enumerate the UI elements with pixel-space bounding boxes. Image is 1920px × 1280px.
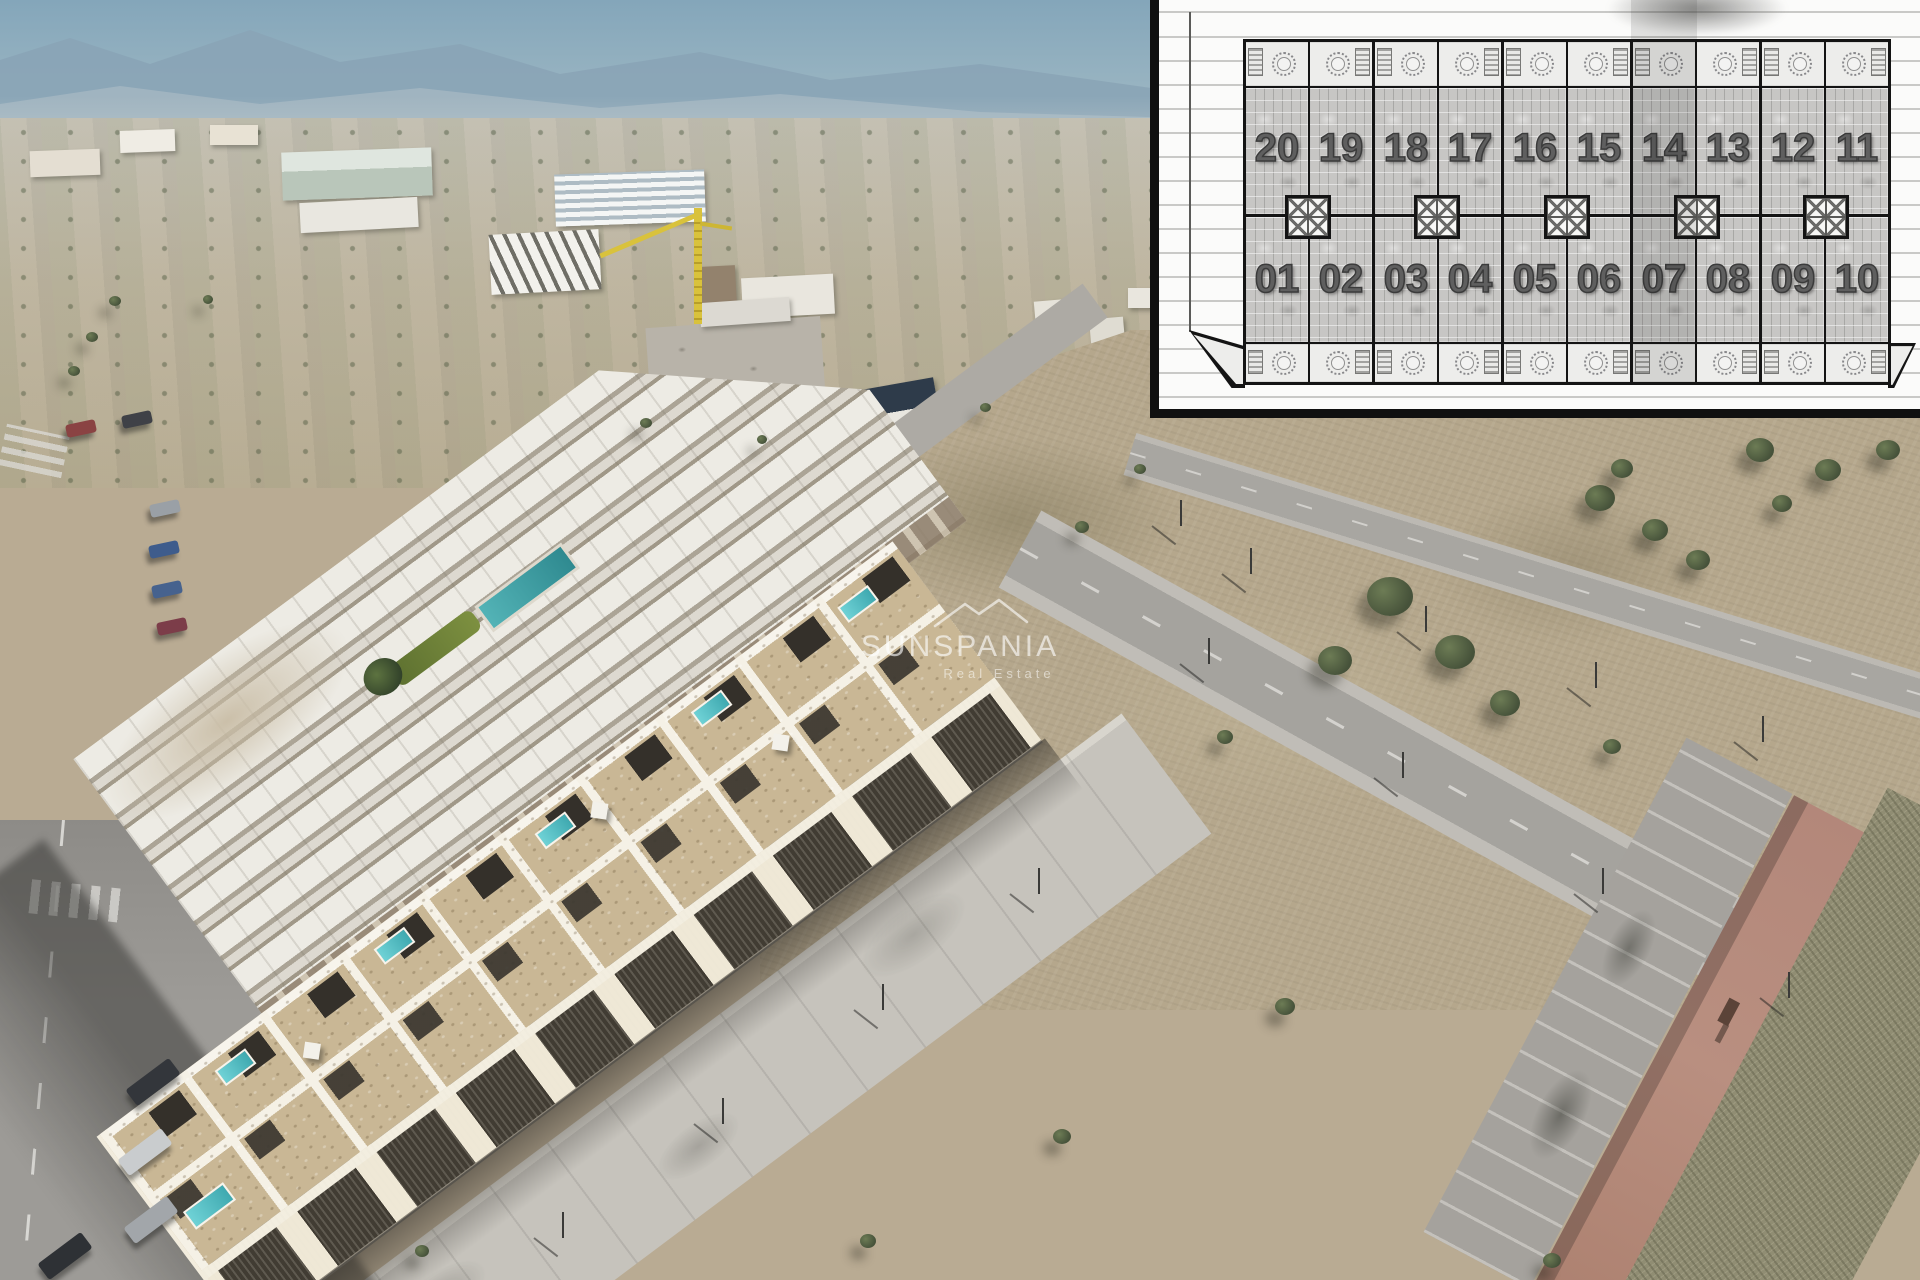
shed (299, 197, 418, 233)
stairs-icon (1506, 48, 1521, 76)
aerial-photo: SUNSPANIA Real Estate 200119021803170416… (0, 0, 1920, 1280)
tree (1746, 438, 1774, 462)
terrace-table-icon (1788, 52, 1812, 76)
plan-unit-20: 20 (1246, 128, 1308, 168)
plan-unit-17: 17 (1439, 128, 1501, 168)
community-pool (474, 542, 580, 632)
tree (1053, 1129, 1071, 1144)
terrace-cell (1310, 42, 1372, 88)
plan-unit-12: 12 (1762, 128, 1824, 168)
site-boundary-line (1189, 12, 1191, 332)
terrace-cell (1375, 342, 1437, 382)
terrace-cell (1504, 342, 1566, 382)
stairs-icon (1742, 350, 1757, 374)
stairs-icon (1355, 350, 1370, 374)
parked-car (148, 540, 180, 559)
stairs-icon (1248, 48, 1263, 76)
stairs-icon (1742, 48, 1757, 76)
tree (1367, 577, 1413, 616)
plan-unit-05: 05 (1504, 259, 1566, 299)
stair-core (1803, 195, 1849, 239)
tree (1603, 739, 1621, 754)
stairs-icon (1484, 350, 1499, 374)
terrace-cell (1697, 342, 1759, 382)
tree (1490, 690, 1520, 716)
terrace-cell (1826, 342, 1888, 382)
tree (980, 403, 991, 412)
watermark-brand: SUNSPANIA (845, 630, 1075, 664)
terrace-table-icon (1272, 351, 1296, 375)
tree (1275, 998, 1295, 1015)
street-lamp (1425, 606, 1427, 632)
building (30, 149, 101, 177)
street-lamp (1038, 868, 1040, 894)
plan-unit-13: 13 (1697, 128, 1759, 168)
tree (1543, 1253, 1561, 1268)
terrace-cell (1439, 42, 1501, 88)
tree (860, 1234, 876, 1248)
terrace-cell (1826, 42, 1888, 88)
tree (1686, 550, 1710, 570)
terrace-cell (1762, 42, 1824, 88)
terrace-table-icon (1530, 351, 1554, 375)
terrace-cell (1568, 42, 1630, 88)
terrace-table-icon (1788, 351, 1812, 375)
tree (415, 1245, 429, 1257)
tree (1318, 646, 1352, 675)
tree (1435, 635, 1475, 669)
tree (1611, 459, 1633, 478)
watermark-tagline: Real Estate (923, 666, 1075, 681)
tree (109, 296, 121, 306)
tree (1876, 440, 1900, 460)
stairs-icon (1764, 48, 1779, 76)
site-plan-overlay: 2001190218031704160515061407130812091110 (1150, 0, 1920, 418)
street-lamp (1250, 548, 1252, 574)
plan-unit-19: 19 (1310, 128, 1372, 168)
plan-unit-16: 16 (1504, 128, 1566, 168)
tree (1585, 485, 1615, 511)
terrace-table-icon (1713, 52, 1737, 76)
street-lamp (1602, 868, 1604, 894)
terrace-cell (1504, 42, 1566, 88)
stairs-icon (1871, 48, 1886, 76)
tree (757, 435, 767, 444)
terrace-table-icon (1401, 52, 1425, 76)
parked-car (151, 580, 183, 599)
stairs-icon (1248, 350, 1263, 374)
stairs-icon (1355, 48, 1370, 76)
shade-smudge (1607, 0, 1787, 36)
tree (1772, 495, 1792, 512)
plan-unit-10: 10 (1826, 259, 1888, 299)
terrace-table-icon (1326, 52, 1350, 76)
terrace-table-icon (1326, 351, 1350, 375)
stair-core (1285, 195, 1331, 239)
stair-core (1414, 195, 1460, 239)
building (120, 129, 176, 153)
stairs-icon (1613, 48, 1628, 76)
plan-unit-02: 02 (1310, 259, 1372, 299)
terrace-cell (1762, 342, 1824, 382)
plan-unit-04: 04 (1439, 259, 1501, 299)
street-lamp (1595, 662, 1597, 688)
terrace-table-icon (1584, 351, 1608, 375)
plan-unit-09: 09 (1762, 259, 1824, 299)
terrace-table-icon (1530, 52, 1554, 76)
umbrella (772, 733, 790, 751)
plan-unit-03: 03 (1375, 259, 1437, 299)
tree (1815, 459, 1841, 481)
terrace-cell (1439, 342, 1501, 382)
plan-unit-11: 11 (1826, 128, 1888, 168)
plan-unit-01: 01 (1246, 259, 1308, 299)
tree (68, 366, 80, 376)
terrace-cell (1375, 42, 1437, 88)
tree (1217, 730, 1233, 744)
plan-unit-18: 18 (1375, 128, 1437, 168)
watermark: SUNSPANIA Real Estate (845, 598, 1075, 681)
stairs-icon (1764, 350, 1779, 374)
umbrella (303, 1042, 321, 1060)
terrace-table-icon (1272, 52, 1296, 76)
tree (1075, 521, 1089, 533)
tree (203, 295, 213, 304)
terrace-cell (1310, 342, 1372, 382)
terrace-cell (1568, 342, 1630, 382)
tree (1134, 464, 1146, 474)
parked-car (156, 617, 188, 636)
plan-unit-08: 08 (1697, 259, 1759, 299)
stairs-icon (1377, 350, 1392, 374)
tree (1642, 519, 1668, 541)
plan-unit-15: 15 (1568, 128, 1630, 168)
terrace-table-icon (1455, 52, 1479, 76)
highlight-shade-units-14-07 (1631, 0, 1697, 385)
umbrella (590, 802, 608, 820)
terrace-cell (1246, 342, 1308, 382)
street-lamp (562, 1212, 564, 1238)
terrace-table-icon (1842, 52, 1866, 76)
row-houses (489, 229, 602, 295)
street-lamp (722, 1098, 724, 1124)
stair-core (1544, 195, 1590, 239)
warehouse (281, 147, 433, 200)
terrace-table-icon (1584, 52, 1608, 76)
stairs-icon (1506, 350, 1521, 374)
building (210, 125, 258, 145)
tree (86, 332, 98, 342)
terrace-table-icon (1842, 351, 1866, 375)
terrace-table-icon (1713, 351, 1737, 375)
street-lamp (882, 984, 884, 1010)
parked-car (149, 499, 181, 518)
street-lamp (1180, 500, 1182, 526)
roof-logo-icon (933, 598, 1029, 628)
dirt-patch (73, 585, 381, 857)
terrace-table-icon (1401, 351, 1425, 375)
street-lamp (1402, 752, 1404, 778)
plan-unit-06: 06 (1568, 259, 1630, 299)
stairs-icon (1871, 350, 1886, 374)
tree (640, 418, 652, 428)
terrace-cell (1697, 42, 1759, 88)
stairs-icon (1484, 48, 1499, 76)
street-lamp (1208, 638, 1210, 664)
terrace-cell (1246, 42, 1308, 88)
street-lamp (1762, 716, 1764, 742)
terrace-table-icon (1455, 351, 1479, 375)
stairs-icon (1377, 48, 1392, 76)
stairs-icon (1613, 350, 1628, 374)
street-lamp (1788, 972, 1790, 998)
